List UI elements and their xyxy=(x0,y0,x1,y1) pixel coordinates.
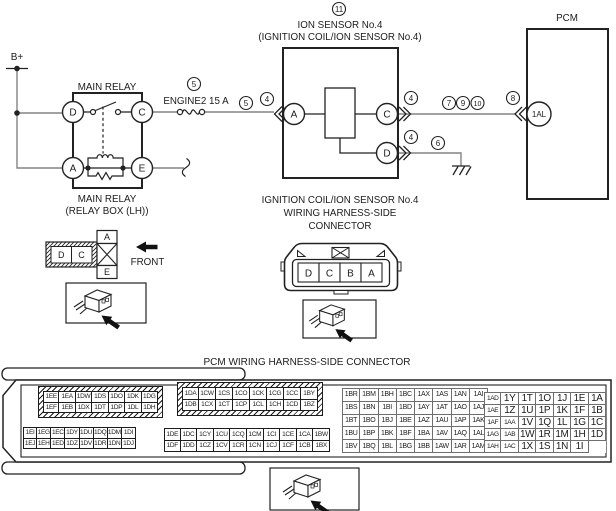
pin-1BL: 1BL xyxy=(379,440,397,453)
pin-1CL: 1CL xyxy=(250,400,267,412)
pin-1BX: 1BX xyxy=(313,441,330,453)
pin-1BF: 1BF xyxy=(397,427,415,440)
callout-10: 10 xyxy=(471,97,484,110)
pin-1DC: 1DC xyxy=(181,428,198,441)
pin-1BG: 1BG xyxy=(397,440,415,453)
pin-1DX: 1DX xyxy=(76,403,92,414)
pin-block-left-top: 1EE1EA1DW1DS1DO1DK1DG1EF1EB1DX1DT1DP1DL1… xyxy=(38,386,163,418)
pin-grid: 1EE1EA1DW1DS1DO1DK1DG1EF1EB1DX1DT1DP1DL1… xyxy=(43,391,158,413)
callout-4-d: 4 xyxy=(405,131,418,144)
pin-1BN: 1BN xyxy=(360,402,378,415)
pin-1CZ: 1CZ xyxy=(197,441,214,453)
pin-1CU: 1CU xyxy=(214,428,231,441)
pin-1DB: 1DB xyxy=(182,400,199,412)
pin-1DK: 1DK xyxy=(125,391,141,403)
svg-text:1AL: 1AL xyxy=(532,110,547,119)
pin-1G: 1G xyxy=(571,417,588,429)
b-plus-label: B+ xyxy=(11,52,24,63)
svg-text:9: 9 xyxy=(461,99,466,108)
svg-text:8: 8 xyxy=(511,94,516,103)
relay-terminal-E: E xyxy=(132,158,153,179)
pin-1BZ: 1BZ xyxy=(301,400,318,412)
pin-1CK: 1CK xyxy=(250,387,267,400)
coil-connector-view: IGNITION COIL/ION SENSOR No.4 WIRING HAR… xyxy=(262,195,419,294)
pin-1DE: 1DE xyxy=(164,428,181,441)
pin-1BH: 1BH xyxy=(379,388,397,402)
pin-1AW: 1AW xyxy=(433,440,451,453)
front-label: FRONT xyxy=(131,257,165,268)
svg-text:D: D xyxy=(69,108,76,119)
relay-conn-cell-E: E xyxy=(104,267,110,277)
pin-1AG: 1AG xyxy=(484,429,501,441)
pin-1CB: 1CB xyxy=(297,441,314,453)
pcm-box: PCM 1AL xyxy=(527,13,608,199)
svg-text:4: 4 xyxy=(409,133,414,142)
pin-1AZ: 1AZ xyxy=(415,415,433,428)
pin-1J: 1J xyxy=(554,392,571,405)
pin-1CN: 1CN xyxy=(247,441,264,453)
pin-1EG: 1EG xyxy=(37,427,51,439)
pin-1DN: 1DN xyxy=(108,439,122,450)
pin-1CT: 1CT xyxy=(216,400,233,412)
pin-1BM: 1BM xyxy=(360,388,378,402)
svg-text:4: 4 xyxy=(265,95,270,104)
svg-text:5: 5 xyxy=(192,80,197,89)
pin-1BY: 1BY xyxy=(301,387,318,400)
pin-1AR: 1AR xyxy=(452,440,470,453)
pin-1DO: 1DO xyxy=(109,391,125,403)
pin-1AO: 1AO xyxy=(452,402,470,415)
pin-1CX: 1CX xyxy=(199,400,216,412)
pin-1AA: 1AA xyxy=(501,417,518,429)
pin-1AQ: 1AQ xyxy=(452,427,470,440)
pin-1S: 1S xyxy=(536,441,553,453)
pin-1BV: 1BV xyxy=(342,440,360,453)
pin-block-mid-bottom: 1DE1DC1CY1CU1CQ1CM1CI1CE1CA1BW1DF1DD1CZ1… xyxy=(164,428,330,452)
pin-1DV: 1DV xyxy=(80,439,94,450)
relay-conn-cell-A: A xyxy=(104,232,110,242)
callout-8: 8 xyxy=(507,92,520,105)
pin-1A: 1A xyxy=(589,392,606,405)
pin-1AX: 1AX xyxy=(415,388,433,402)
pin-1DW: 1DW xyxy=(76,391,92,403)
svg-text:5: 5 xyxy=(244,99,249,108)
pin-1AY: 1AY xyxy=(415,402,433,415)
pin-block-left-bottom: 1EI1EG1EC1DY1DU1DQ1DM1DI1EJ1EH1ED1DZ1DV1… xyxy=(23,427,136,449)
pin-1AE: 1AE xyxy=(484,405,501,417)
pin-1T: 1T xyxy=(519,392,536,405)
pin-1DR: 1DR xyxy=(94,439,108,450)
pin-1CC: 1CC xyxy=(284,387,301,400)
pin-1AF: 1AF xyxy=(484,417,501,429)
pin-1DL: 1DL xyxy=(125,403,141,414)
coil-conn-cell-A: A xyxy=(368,269,375,280)
pin-1CI: 1CI xyxy=(264,428,281,441)
ion-title-1: ION SENSOR No.4 xyxy=(298,20,383,31)
svg-text:7: 7 xyxy=(447,99,452,108)
pin-empty xyxy=(589,441,606,453)
callout-4-c: 4 xyxy=(405,92,418,105)
pin-1DH: 1DH xyxy=(142,403,158,414)
pin-1DT: 1DT xyxy=(92,403,108,414)
svg-text:C: C xyxy=(383,110,390,121)
pin-1DG: 1DG xyxy=(142,391,158,403)
pin-1BR: 1BR xyxy=(342,388,360,402)
coil-conn-caption-1: IGNITION COIL/ION SENSOR No.4 xyxy=(262,195,419,206)
pin-1F: 1F xyxy=(571,405,588,417)
front-arrow-icon xyxy=(136,242,158,253)
pin-1EC: 1EC xyxy=(51,427,65,439)
pin-1Z: 1Z xyxy=(501,405,518,417)
pin-1C: 1C xyxy=(589,417,606,429)
pin-1O: 1O xyxy=(536,392,553,405)
pin-1B: 1B xyxy=(589,405,606,417)
pin-1EI: 1EI xyxy=(23,427,37,439)
svg-text:A: A xyxy=(291,110,298,121)
pin-1CJ: 1CJ xyxy=(264,441,281,453)
pin-1E: 1E xyxy=(571,392,588,405)
pin-1BJ: 1BJ xyxy=(379,415,397,428)
ion-title-2: (IGNITION COIL/ION SENSOR No.4) xyxy=(258,32,421,43)
pcm-connector-photo xyxy=(270,468,359,511)
connector-top-rail xyxy=(2,368,245,380)
pin-1BI: 1BI xyxy=(379,402,397,415)
pin-block-mid-top: 1DA1CW1CS1CO1CK1CG1CC1BY1DB1CX1CT1CP1CL1… xyxy=(177,382,323,416)
pin-1AU: 1AU xyxy=(433,415,451,428)
relay-terminal-D: D xyxy=(63,102,84,123)
svg-text:E: E xyxy=(139,164,146,175)
pin-1CE: 1CE xyxy=(280,428,297,441)
pin-1EA: 1EA xyxy=(59,391,75,403)
pin-1AP: 1AP xyxy=(452,415,470,428)
pin-1AC: 1AC xyxy=(501,441,518,453)
connector-bottom-rail xyxy=(2,462,245,474)
ground-symbol xyxy=(452,166,471,175)
relay-terminal-C: C xyxy=(132,102,153,123)
callout-4-a: 4 xyxy=(261,93,274,106)
pin-1DM: 1DM xyxy=(108,427,122,439)
callout-11: 11 xyxy=(333,3,346,16)
pin-1BD: 1BD xyxy=(397,402,415,415)
pin-1DU: 1DU xyxy=(80,427,94,439)
pin-1BP: 1BP xyxy=(360,427,378,440)
pin-1CW: 1CW xyxy=(199,387,216,400)
pin-1EJ: 1EJ xyxy=(23,439,37,450)
wiring-diagram-page: B+ MAIN RELAY D C A E xyxy=(0,0,616,511)
pin-1CG: 1CG xyxy=(267,387,284,400)
pin-block-right-a: 1BR1BM1BH1BC1AX1AS1AN1AI1BS1BN1BI1BD1AY1… xyxy=(342,388,488,453)
pin-1K: 1K xyxy=(554,405,571,417)
pin-1BU: 1BU xyxy=(342,427,360,440)
pin-1Y: 1Y xyxy=(501,392,518,405)
ion-terminal-C: C xyxy=(377,104,398,125)
pin-1BS: 1BS xyxy=(342,402,360,415)
pin-1BQ: 1BQ xyxy=(360,440,378,453)
pin-1CY: 1CY xyxy=(197,428,214,441)
ion-internal-module xyxy=(325,88,355,138)
relay-conn-cell-D: D xyxy=(58,250,65,260)
pin-1AH: 1AH xyxy=(484,441,501,453)
pin-1BO: 1BO xyxy=(360,415,378,428)
relay-conn-cell-C: C xyxy=(78,250,85,260)
pin-1EH: 1EH xyxy=(37,439,51,450)
main-relay: MAIN RELAY D C A E MAIN RELAY (RELAY BOX… xyxy=(63,82,153,217)
pin-1Q: 1Q xyxy=(536,417,553,429)
relay-connector-photo xyxy=(66,283,146,332)
pin-1CF: 1CF xyxy=(280,441,297,453)
main-relay-title: MAIN RELAY xyxy=(78,82,137,93)
pin-1W: 1W xyxy=(519,429,536,441)
pcm-title: PCM xyxy=(556,13,578,24)
pcm-terminal-1AL: 1AL xyxy=(527,102,551,126)
pin-1EF: 1EF xyxy=(43,403,59,414)
callout-5-fuse: 5 xyxy=(188,78,201,91)
pin-1DJ: 1DJ xyxy=(122,439,136,450)
pin-1U: 1U xyxy=(519,405,536,417)
pin-1CV: 1CV xyxy=(214,441,231,453)
pin-1DD: 1DD xyxy=(181,441,198,453)
pin-1H: 1H xyxy=(571,429,588,441)
pin-1BT: 1BT xyxy=(342,415,360,428)
pin-1BA: 1BA xyxy=(415,427,433,440)
pin-1BE: 1BE xyxy=(397,415,415,428)
pin-1BC: 1BC xyxy=(397,388,415,402)
pin-1DQ: 1DQ xyxy=(94,427,108,439)
pin-1AT: 1AT xyxy=(433,402,451,415)
pin-1P: 1P xyxy=(536,405,553,417)
fuse-name: ENGINE2 15 A xyxy=(163,96,229,107)
callout-9: 9 xyxy=(457,97,470,110)
svg-text:D: D xyxy=(383,149,390,160)
pin-1L: 1L xyxy=(554,417,571,429)
pin-1DI: 1DI xyxy=(122,427,136,439)
relay-connector-view: D C A E FRONT xyxy=(46,231,164,279)
pin-1D: 1D xyxy=(589,429,606,441)
relay-terminal-A: A xyxy=(63,158,84,179)
callout-7: 7 xyxy=(443,97,456,110)
pin-1I: 1I xyxy=(571,441,588,453)
pin-1AV: 1AV xyxy=(433,427,451,440)
pin-1DA: 1DA xyxy=(182,387,199,400)
coil-conn-cell-D: D xyxy=(305,269,312,280)
ion-sensor-box: ION SENSOR No.4 (IGNITION COIL/ION SENSO… xyxy=(258,20,421,178)
ion-terminal-D: D xyxy=(377,143,398,164)
pin-1EB: 1EB xyxy=(59,403,75,414)
pin-1N: 1N xyxy=(554,441,571,453)
pin-1R: 1R xyxy=(536,429,553,441)
pin-1CD: 1CD xyxy=(284,400,301,412)
main-relay-caption-2: (RELAY BOX (LH)) xyxy=(66,206,149,217)
pin-1CQ: 1CQ xyxy=(230,428,247,441)
pin-1DS: 1DS xyxy=(92,391,108,403)
junction-dot xyxy=(14,110,20,116)
pin-1DP: 1DP xyxy=(109,403,125,414)
pin-1CS: 1CS xyxy=(216,387,233,400)
pcm-connector-title: PCM WIRING HARNESS-SIDE CONNECTOR xyxy=(203,357,410,368)
svg-text:11: 11 xyxy=(335,5,344,14)
pin-1X: 1X xyxy=(519,441,536,453)
pin-1AD: 1AD xyxy=(484,392,501,405)
pin-1CM: 1CM xyxy=(247,428,264,441)
callout-5: 5 xyxy=(240,97,253,110)
svg-text:6: 6 xyxy=(436,139,441,148)
coil-conn-cell-C: C xyxy=(326,269,333,280)
pin-1AS: 1AS xyxy=(433,388,451,402)
svg-text:4: 4 xyxy=(409,94,414,103)
svg-text:A: A xyxy=(70,164,77,175)
pin-block-right-b: 1AD1Y1T1O1J1E1A1AE1Z1U1P1K1F1B1AF1AA1V1Q… xyxy=(484,392,606,453)
pin-1M: 1M xyxy=(554,429,571,441)
callout-6: 6 xyxy=(432,137,445,150)
pin-1AB: 1AB xyxy=(501,429,518,441)
main-relay-caption-1: MAIN RELAY xyxy=(78,194,137,205)
pin-1ED: 1ED xyxy=(51,439,65,450)
pin-1V: 1V xyxy=(519,417,536,429)
pin-1AN: 1AN xyxy=(452,388,470,402)
pin-1CP: 1CP xyxy=(233,400,250,412)
pin-1EE: 1EE xyxy=(43,391,59,403)
pin-1BW: 1BW xyxy=(313,428,330,441)
coil-connector-photo xyxy=(303,300,376,345)
pin-1DF: 1DF xyxy=(164,441,181,453)
pin-1BB: 1BB xyxy=(415,440,433,453)
pin-1DZ: 1DZ xyxy=(65,439,79,450)
svg-text:C: C xyxy=(138,108,145,119)
pin-grid: 1DA1CW1CS1CO1CK1CG1CC1BY1DB1CX1CT1CP1CL1… xyxy=(182,387,318,411)
pin-1CO: 1CO xyxy=(233,387,250,400)
pin-1CA: 1CA xyxy=(297,428,314,441)
svg-text:10: 10 xyxy=(474,101,482,108)
pin-1CR: 1CR xyxy=(230,441,247,453)
pin-1BK: 1BK xyxy=(379,427,397,440)
pin-1CH: 1CH xyxy=(267,400,284,412)
coil-conn-caption-2: WIRING HARNESS-SIDE xyxy=(284,208,397,219)
pin-1DY: 1DY xyxy=(65,427,79,439)
coil-conn-caption-3: CONNECTOR xyxy=(309,221,372,232)
coil-conn-cell-B: B xyxy=(347,269,354,280)
